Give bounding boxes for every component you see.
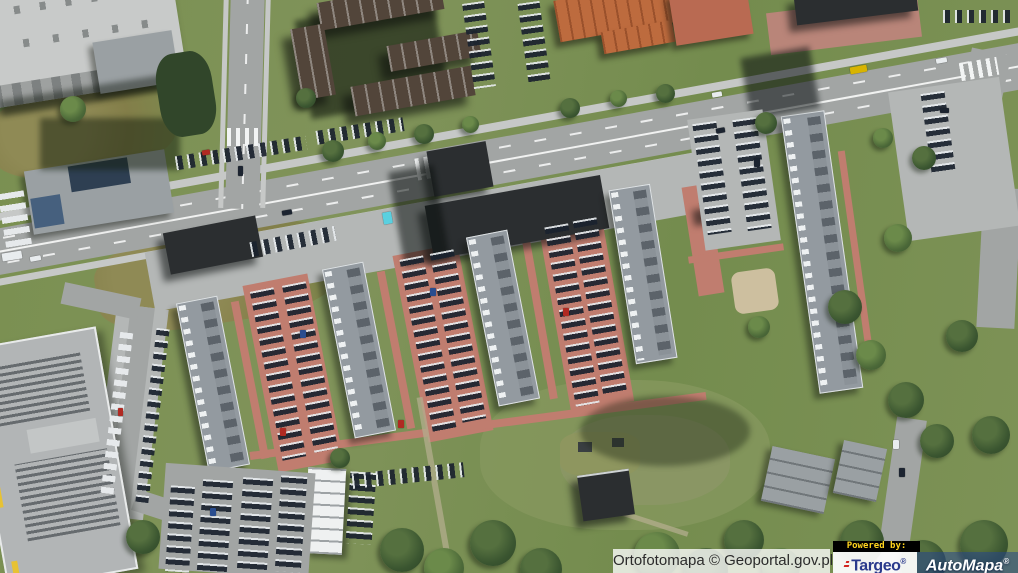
automapa-registered-mark: ® [1003, 557, 1009, 566]
tree [126, 520, 160, 554]
tree [296, 88, 316, 108]
tree [656, 84, 675, 103]
tree [884, 224, 912, 252]
tree [60, 96, 86, 122]
tree-shadow [40, 118, 180, 170]
tree [912, 146, 936, 170]
roof-section [27, 418, 100, 454]
side-street [225, 0, 265, 209]
tree-shadow [580, 396, 750, 466]
car [940, 108, 949, 113]
skylight-rows [0, 352, 90, 428]
tree [888, 382, 924, 418]
tree [755, 112, 777, 134]
lane-marking [241, 0, 249, 209]
car [300, 330, 306, 338]
car [563, 308, 569, 316]
tree [560, 98, 580, 118]
roof-units [0, 0, 157, 18]
car [118, 408, 123, 416]
tree [322, 140, 344, 162]
yellow-accent [11, 561, 21, 573]
tree [873, 128, 893, 148]
powered-by-label: Powered by: [833, 541, 920, 552]
targeo-logo[interactable]: Targeo® [833, 552, 917, 573]
car [893, 440, 899, 449]
tree [414, 124, 434, 144]
tree [610, 90, 627, 107]
disabled-spot [382, 211, 393, 224]
car [280, 428, 286, 436]
attribution-source: Ortofotomapa © Geoportal.gov.pl [613, 549, 830, 573]
tree [828, 290, 862, 324]
tree [946, 320, 978, 352]
tree [972, 416, 1010, 454]
automapa-wordmark: AutoMapa [926, 557, 1003, 573]
car [899, 468, 905, 477]
car [238, 166, 243, 176]
tree [380, 528, 424, 572]
tree [368, 132, 386, 150]
targeo-registered-mark: ® [900, 557, 905, 566]
car [398, 420, 404, 428]
roof-section [30, 194, 64, 228]
building-shadow [740, 46, 820, 119]
automapa-logo[interactable]: AutoMapa® [917, 552, 1018, 573]
tree [856, 340, 886, 370]
car [430, 288, 436, 296]
targeo-wordmark: Targeo [851, 557, 900, 573]
map-canvas[interactable]: Ortofotomapa © Geoportal.gov.pl Powered … [0, 0, 1018, 573]
tree [748, 316, 770, 338]
targeo-red-mark-icon [844, 561, 850, 570]
tree [330, 448, 350, 468]
car [754, 158, 760, 167]
yellow-accent [0, 478, 4, 509]
playground-sand [730, 267, 779, 315]
field-building [577, 469, 635, 522]
parking-column [197, 479, 233, 573]
tree [920, 424, 954, 458]
tree [462, 116, 479, 133]
car [210, 508, 216, 516]
tree [470, 520, 516, 566]
parking-row [943, 10, 1015, 23]
